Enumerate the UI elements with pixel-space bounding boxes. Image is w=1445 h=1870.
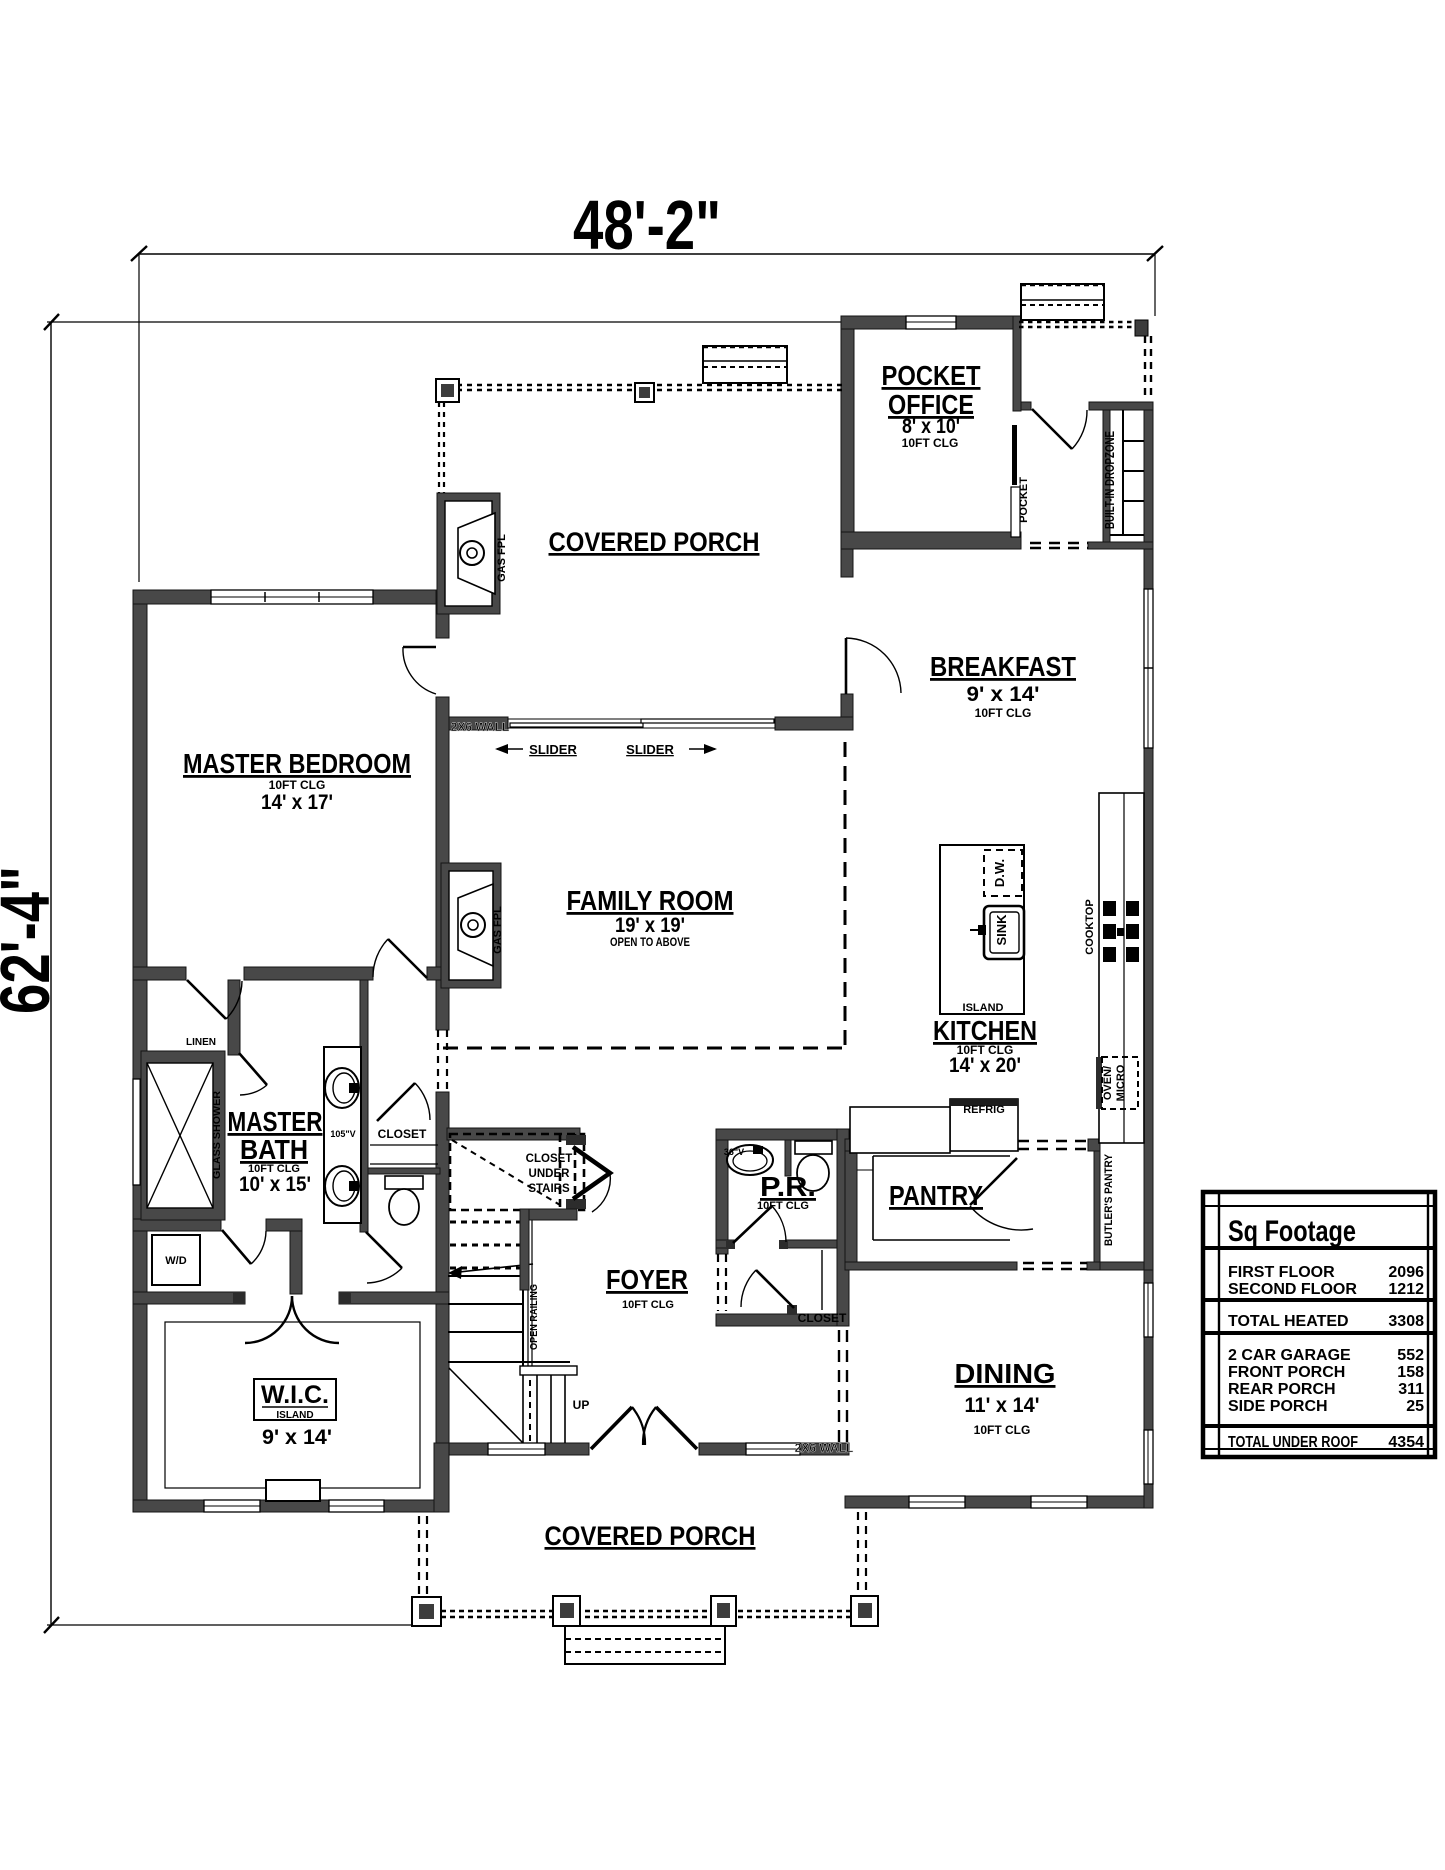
svg-text:19' x 19': 19' x 19' bbox=[615, 914, 685, 937]
svg-text:FOYER: FOYER bbox=[606, 1264, 688, 1295]
svg-text:14' x 20': 14' x 20' bbox=[949, 1054, 1021, 1077]
svg-text:COVERED PORCH: COVERED PORCH bbox=[545, 1521, 756, 1551]
svg-text:BATH: BATH bbox=[240, 1134, 308, 1165]
svg-text:GLASS SHOWER: GLASS SHOWER bbox=[212, 1090, 223, 1179]
svg-text:BREAKFAST: BREAKFAST bbox=[930, 651, 1076, 682]
svg-text:SINK: SINK bbox=[994, 914, 1009, 946]
svg-text:OPEN TO ABOVE: OPEN TO ABOVE bbox=[610, 935, 690, 949]
svg-text:158: 158 bbox=[1397, 1364, 1424, 1381]
svg-text:CLOSET: CLOSET bbox=[378, 1127, 427, 1141]
svg-text:SLIDER: SLIDER bbox=[529, 742, 577, 757]
svg-text:10' x 15': 10' x 15' bbox=[239, 1173, 311, 1196]
svg-text:SIDE PORCH: SIDE PORCH bbox=[1228, 1398, 1328, 1415]
svg-text:11' x 14': 11' x 14' bbox=[965, 1394, 1040, 1417]
svg-text:W/D: W/D bbox=[165, 1255, 186, 1267]
svg-text:UNDER: UNDER bbox=[529, 1168, 571, 1180]
svg-text:552: 552 bbox=[1397, 1347, 1424, 1364]
svg-text:4354: 4354 bbox=[1388, 1434, 1424, 1451]
svg-text:9' x 14': 9' x 14' bbox=[967, 683, 1040, 706]
svg-text:P.R.: P.R. bbox=[760, 1171, 816, 1202]
svg-text:REFRIG: REFRIG bbox=[963, 1104, 1005, 1116]
svg-text:3308: 3308 bbox=[1388, 1313, 1424, 1330]
svg-text:COVERED PORCH: COVERED PORCH bbox=[549, 527, 760, 557]
svg-text:MASTER: MASTER bbox=[228, 1106, 323, 1137]
svg-text:10FT CLG: 10FT CLG bbox=[269, 778, 326, 792]
svg-text:DINING: DINING bbox=[955, 1358, 1056, 1389]
svg-text:10FT CLG: 10FT CLG bbox=[974, 1423, 1031, 1437]
svg-text:CLOSET: CLOSET bbox=[526, 1153, 573, 1165]
svg-text:D.W.: D.W. bbox=[992, 859, 1007, 887]
svg-text:REAR PORCH: REAR PORCH bbox=[1228, 1381, 1336, 1398]
svg-text:10FT CLG: 10FT CLG bbox=[757, 1200, 809, 1212]
svg-text:2 CAR GARAGE: 2 CAR GARAGE bbox=[1228, 1347, 1351, 1364]
svg-text:14' x 17': 14' x 17' bbox=[261, 791, 333, 814]
svg-text:311: 311 bbox=[1398, 1381, 1424, 1398]
svg-text:ISLAND: ISLAND bbox=[276, 1410, 313, 1421]
svg-text:BUTLER'S PANTRY: BUTLER'S PANTRY bbox=[1103, 1153, 1115, 1246]
svg-text:CLOSET: CLOSET bbox=[798, 1311, 847, 1325]
svg-text:9' x 14': 9' x 14' bbox=[262, 1426, 332, 1449]
svg-text:TOTAL UNDER ROOF: TOTAL UNDER ROOF bbox=[1228, 1434, 1358, 1451]
svg-text:SLIDER: SLIDER bbox=[626, 742, 674, 757]
svg-text:1212: 1212 bbox=[1388, 1281, 1424, 1298]
svg-text:POCKET: POCKET bbox=[882, 360, 981, 391]
svg-text:LINEN: LINEN bbox=[186, 1037, 216, 1048]
svg-text:48'-2": 48'-2" bbox=[573, 186, 721, 264]
svg-text:MICRO: MICRO bbox=[1115, 1064, 1127, 1101]
svg-text:GAS FPL: GAS FPL bbox=[492, 906, 504, 954]
svg-text:25: 25 bbox=[1406, 1398, 1424, 1415]
svg-text:SECOND FLOOR: SECOND FLOOR bbox=[1228, 1281, 1357, 1298]
svg-text:GAS FPL: GAS FPL bbox=[496, 534, 508, 582]
svg-text:TOTAL HEATED: TOTAL HEATED bbox=[1228, 1313, 1349, 1330]
svg-text:2X6 WALL: 2X6 WALL bbox=[795, 1441, 854, 1455]
svg-text:2096: 2096 bbox=[1388, 1264, 1424, 1281]
svg-text:10FT CLG: 10FT CLG bbox=[902, 436, 959, 450]
svg-text:FRONT PORCH: FRONT PORCH bbox=[1228, 1364, 1345, 1381]
svg-text:UP: UP bbox=[573, 1398, 590, 1412]
svg-text:8' x 10': 8' x 10' bbox=[902, 415, 960, 438]
svg-text:MASTER BEDROOM: MASTER BEDROOM bbox=[183, 748, 411, 779]
svg-text:10FT CLG: 10FT CLG bbox=[622, 1299, 674, 1311]
svg-text:FIRST FLOOR: FIRST FLOOR bbox=[1228, 1264, 1335, 1281]
svg-text:Sq Footage: Sq Footage bbox=[1228, 1215, 1356, 1248]
svg-text:ISLAND: ISLAND bbox=[963, 1002, 1004, 1014]
svg-text:BUILT-IN DROPZONE: BUILT-IN DROPZONE bbox=[1102, 431, 1117, 529]
svg-text:STAIRS: STAIRS bbox=[528, 1183, 570, 1195]
svg-text:KITCHEN: KITCHEN bbox=[933, 1015, 1037, 1046]
svg-text:COOKTOP: COOKTOP bbox=[1084, 899, 1096, 954]
svg-text:105"V: 105"V bbox=[330, 1129, 355, 1139]
svg-text:10FT CLG: 10FT CLG bbox=[975, 706, 1032, 720]
svg-text:FAMILY ROOM: FAMILY ROOM bbox=[567, 885, 734, 916]
svg-text:POCKET: POCKET bbox=[1018, 477, 1030, 523]
svg-text:OVEN/: OVEN/ bbox=[1102, 1066, 1114, 1100]
svg-text:W.I.C.: W.I.C. bbox=[261, 1381, 329, 1409]
svg-text:2X6 WALL: 2X6 WALL bbox=[451, 720, 510, 734]
svg-text:62'-4": 62'-4" bbox=[0, 866, 64, 1014]
svg-text:PANTRY: PANTRY bbox=[889, 1180, 983, 1211]
svg-text:36"V: 36"V bbox=[724, 1147, 744, 1157]
svg-text:OPEN RAILING: OPEN RAILING bbox=[529, 1284, 540, 1350]
